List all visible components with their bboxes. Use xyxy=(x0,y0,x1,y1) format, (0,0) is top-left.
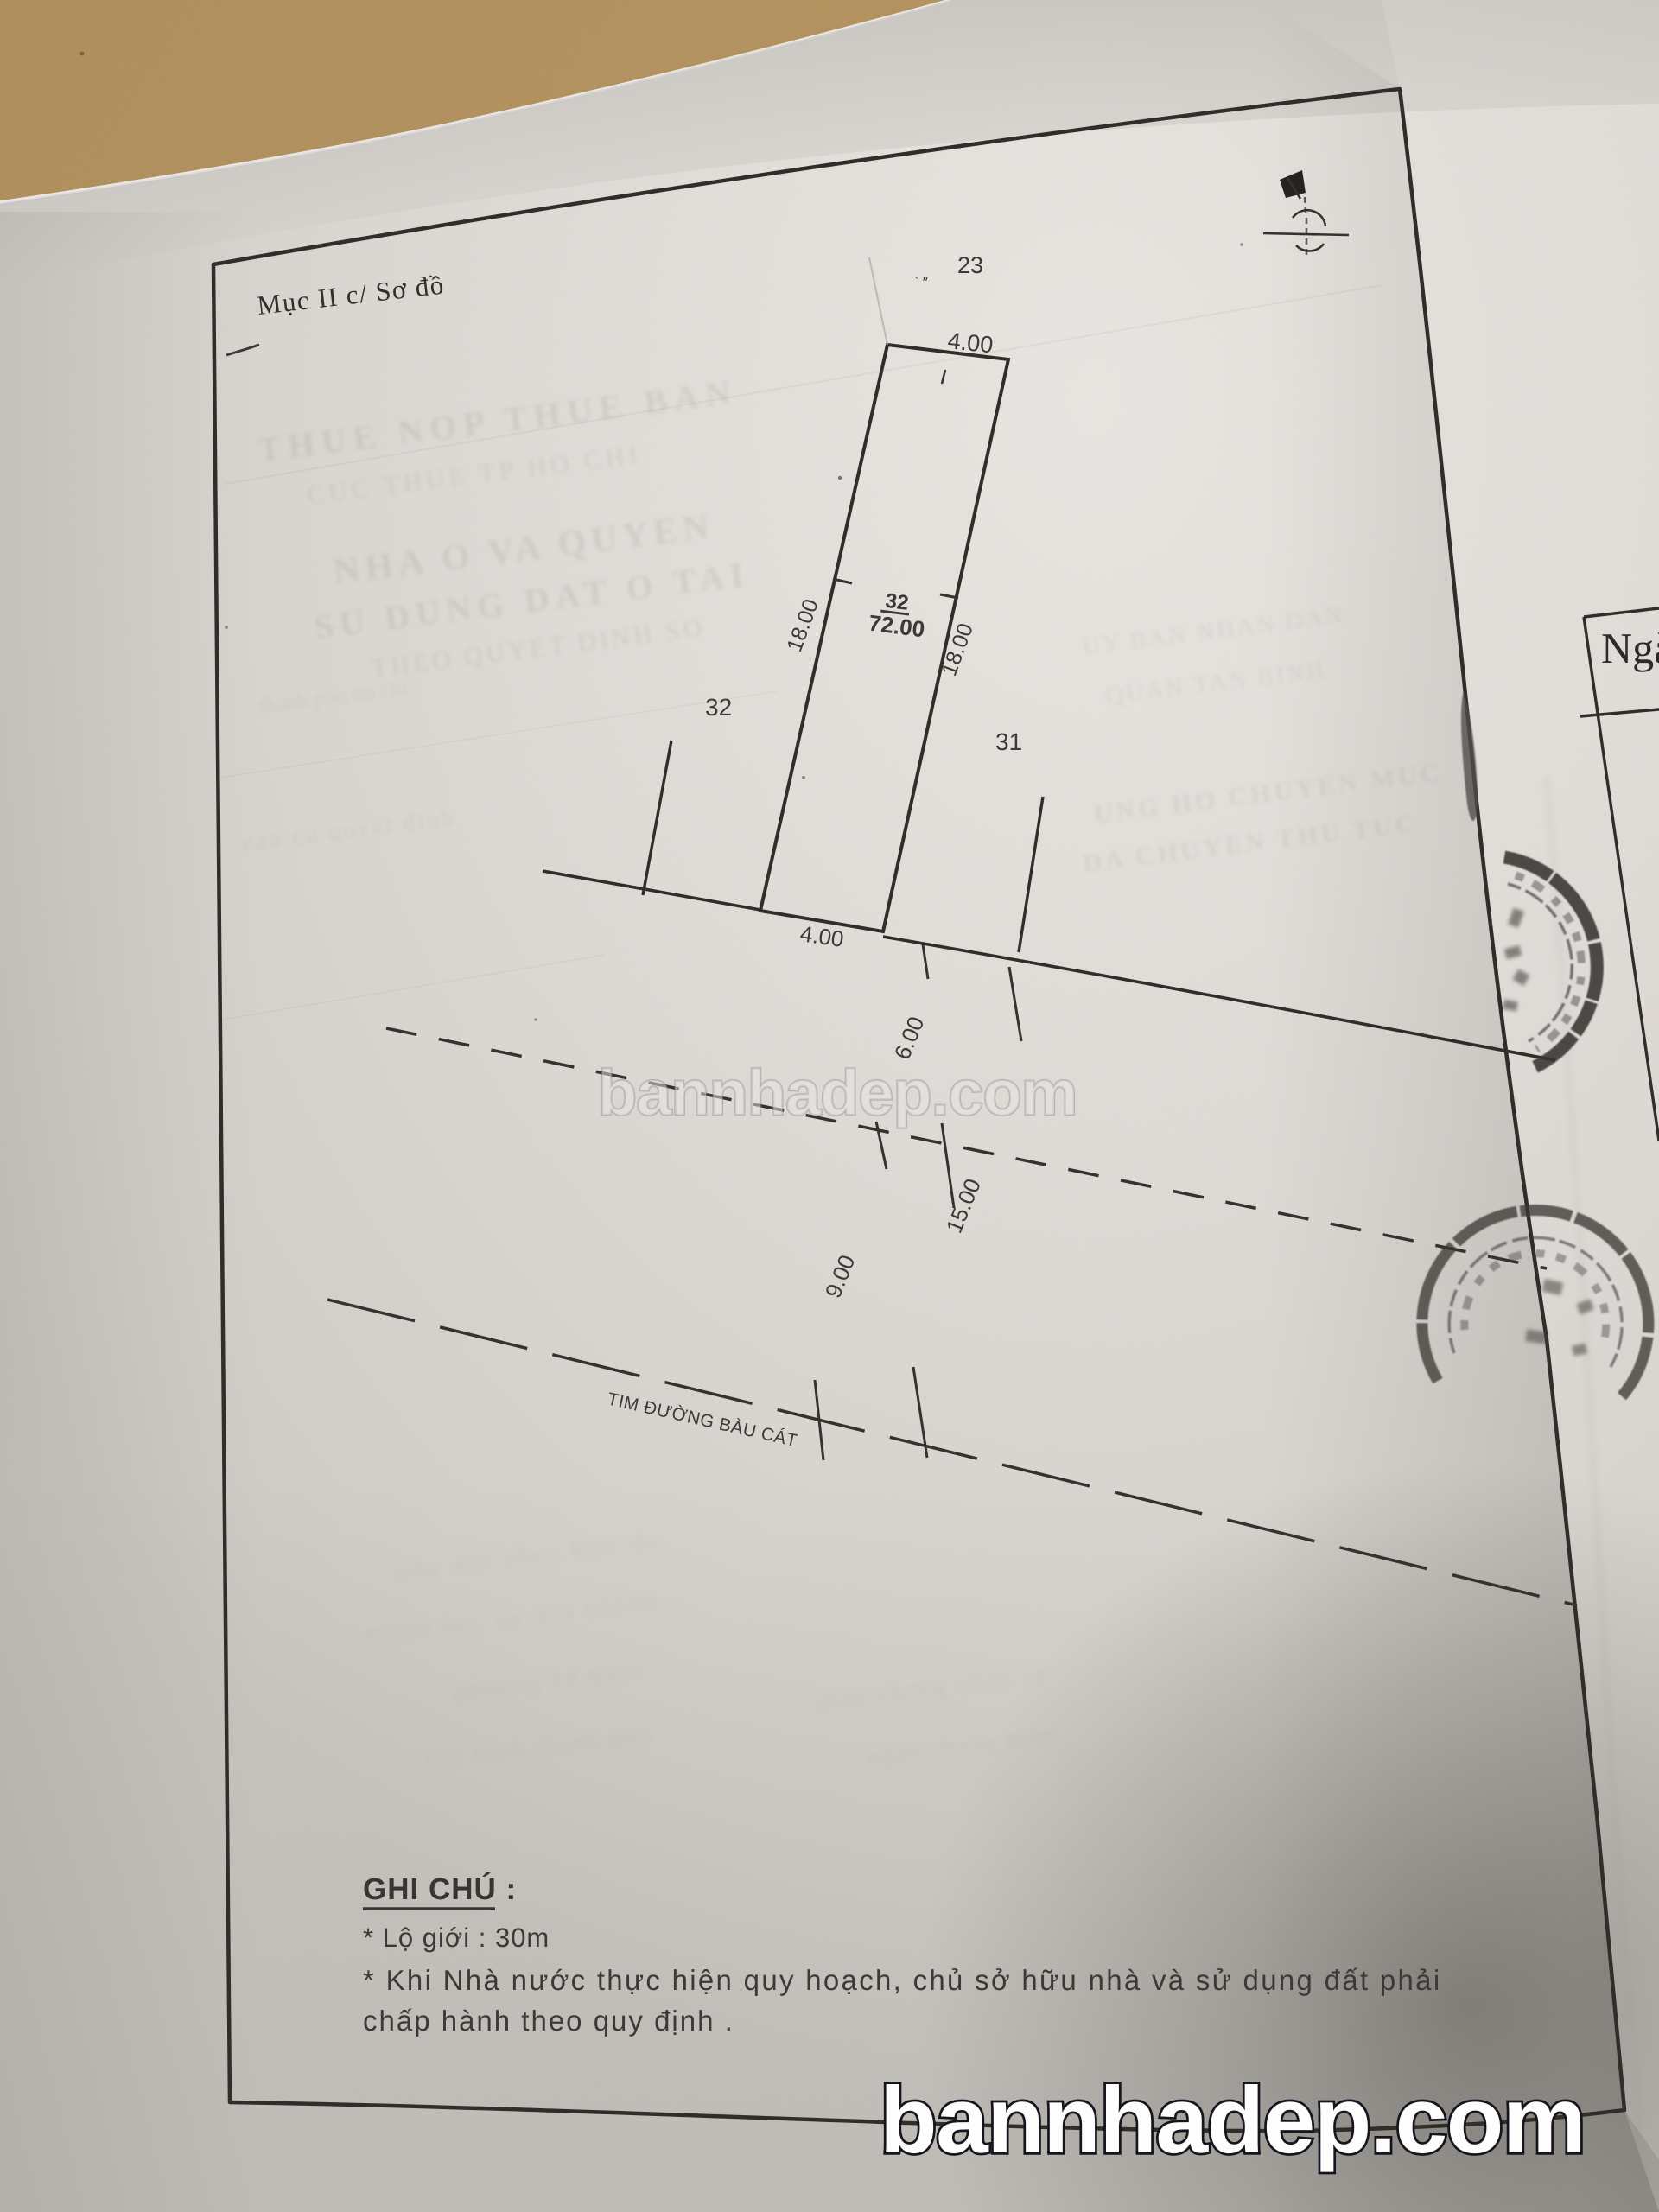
svg-text:bannhadep.com: bannhadep.com xyxy=(880,2068,1585,2173)
